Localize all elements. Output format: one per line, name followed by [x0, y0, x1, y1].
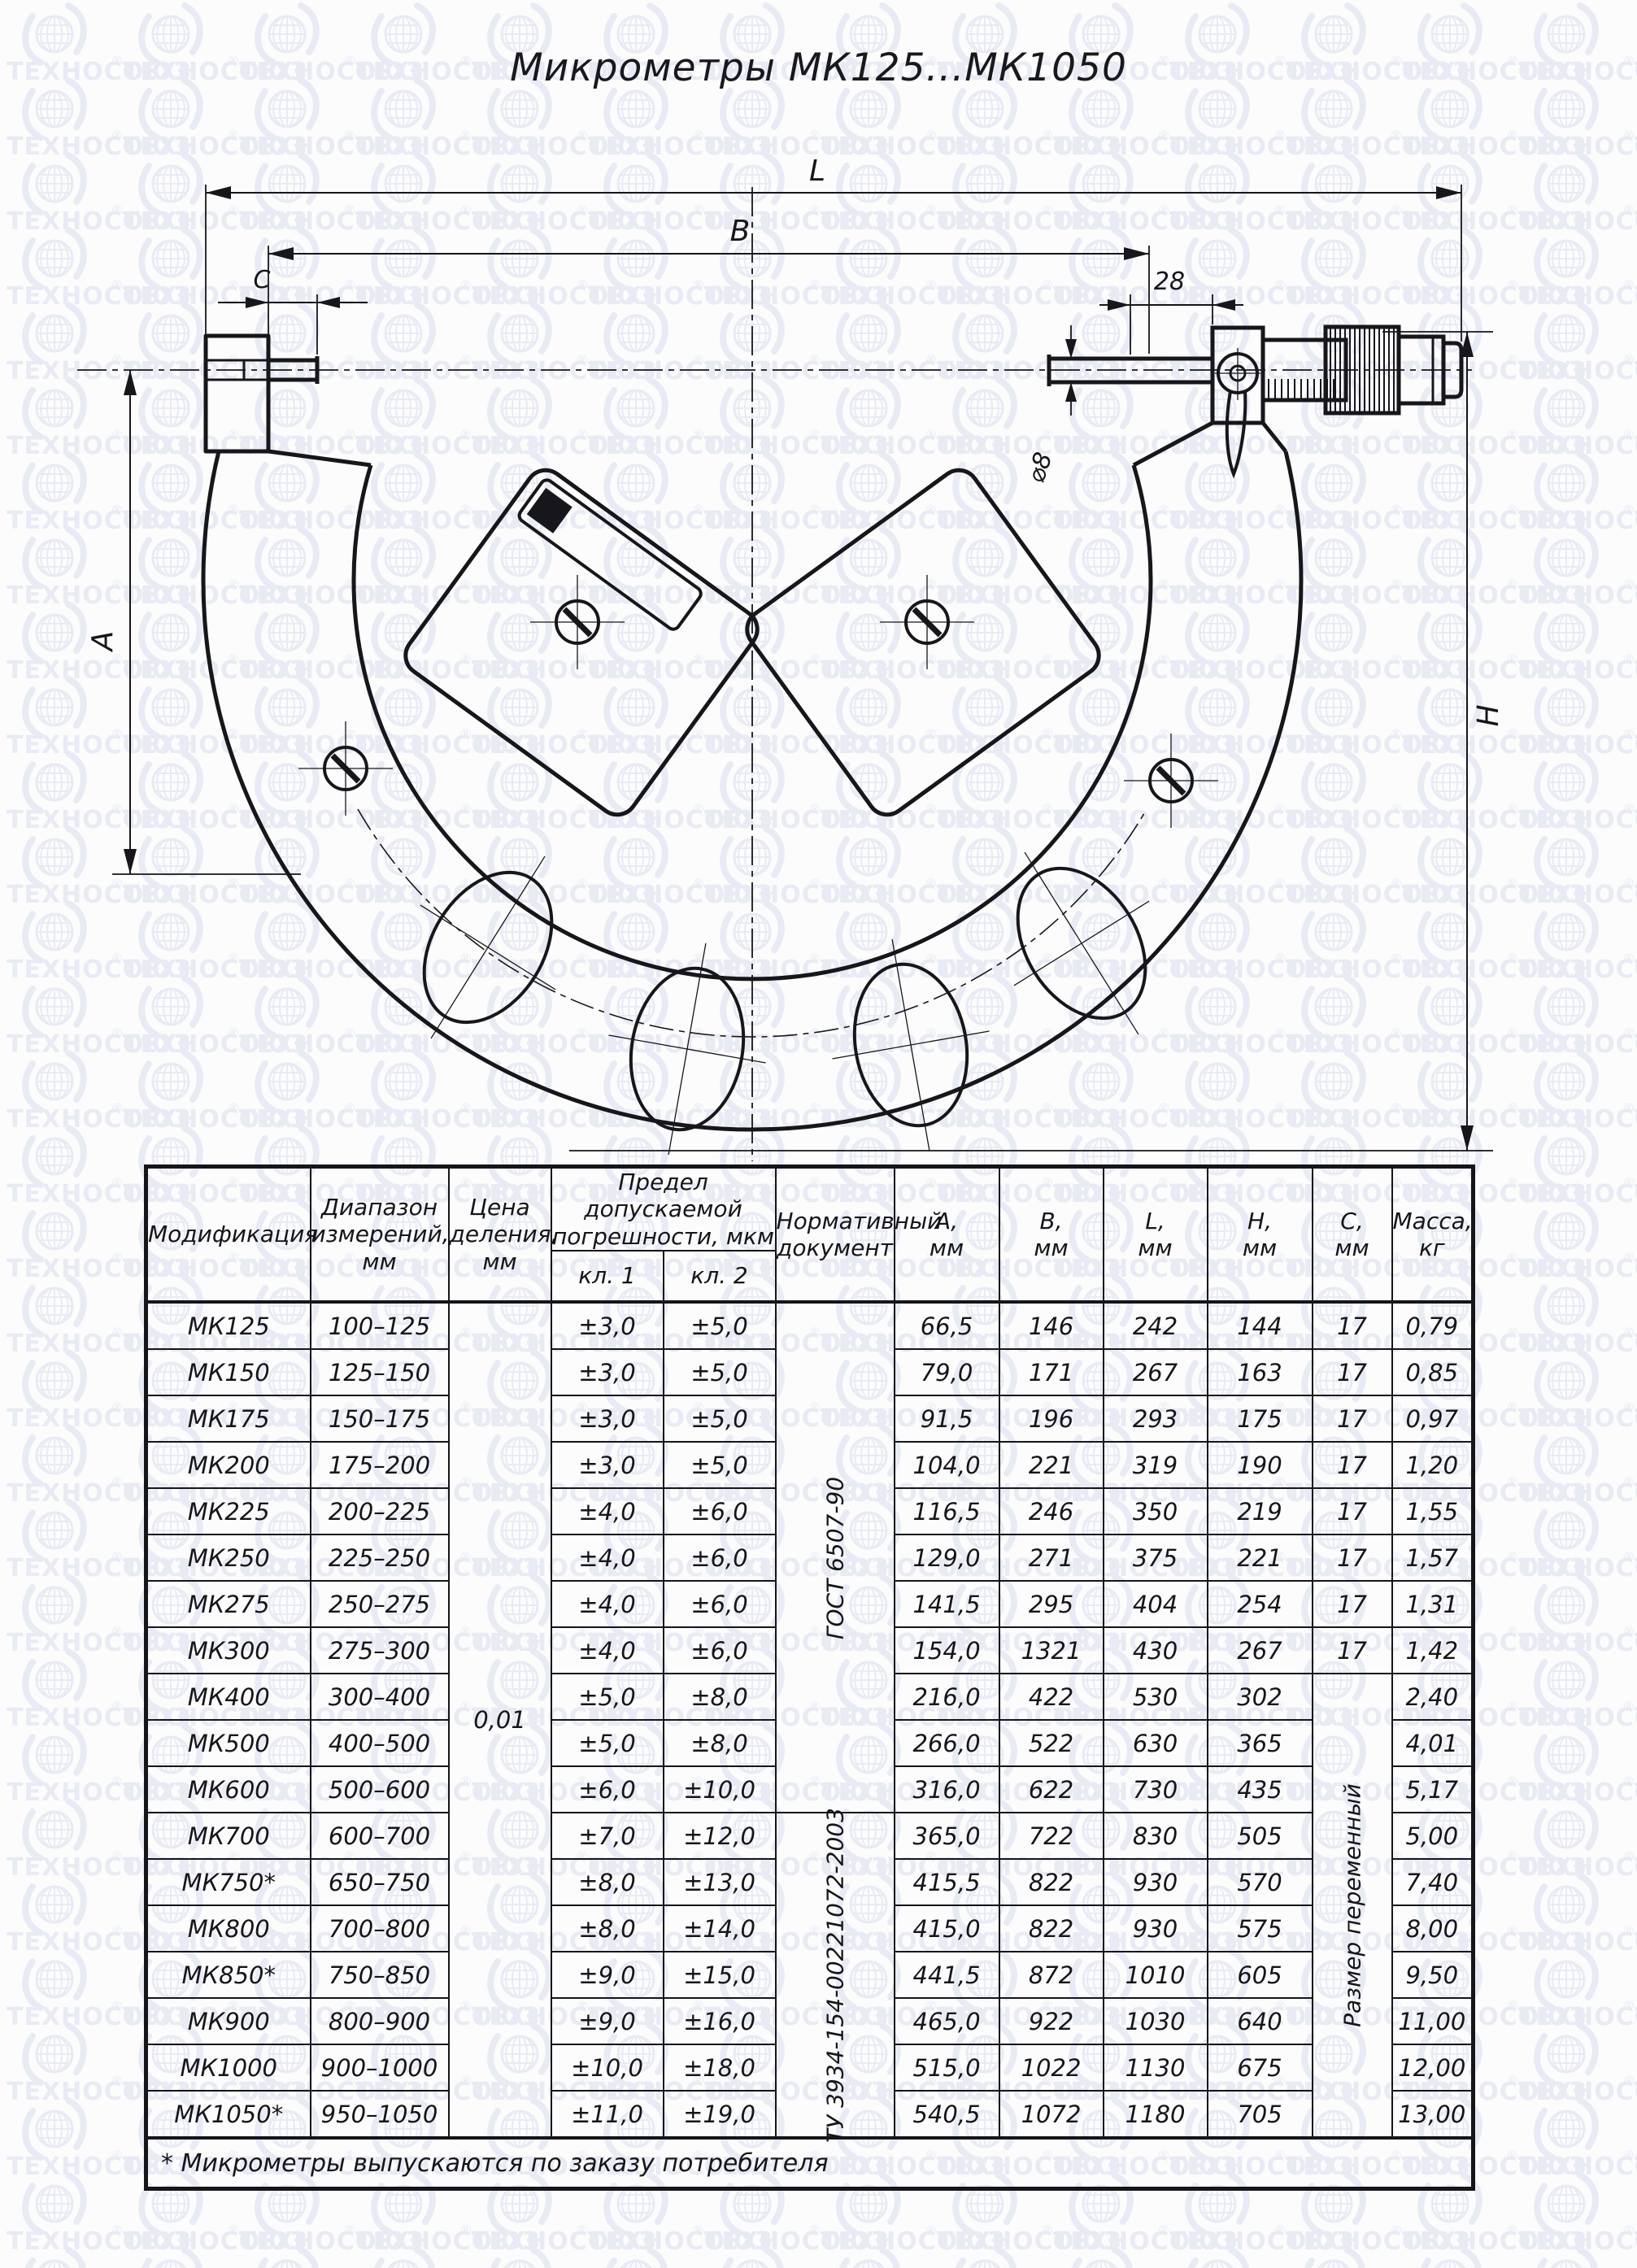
cell-a: 154,0 [895, 1627, 999, 1674]
cell-mass: 0,85 [1392, 1349, 1474, 1395]
cell-h: 144 [1208, 1302, 1313, 1349]
cell-b: 295 [999, 1581, 1104, 1627]
col-header-h: Н, мм [1208, 1167, 1313, 1303]
cell-model: МК175 [146, 1395, 311, 1442]
cell-h: 675 [1208, 2044, 1313, 2091]
cell-l: 430 [1104, 1627, 1208, 1674]
cell-model: МК125 [146, 1302, 311, 1349]
cell-model: МК800 [146, 1905, 311, 1952]
cell-kl1: ±10,0 [551, 2044, 664, 2091]
cell-h: 190 [1208, 1442, 1313, 1488]
cell-a: 415,5 [895, 1859, 999, 1905]
cell-l: 830 [1104, 1813, 1208, 1859]
cell-b: 872 [999, 1952, 1104, 1998]
micrometer-technical-drawing: L B C [0, 138, 1637, 1164]
cell-c: 17 [1313, 1534, 1392, 1581]
cell-kl1: ±8,0 [551, 1905, 664, 1952]
cell-mass: 2,40 [1392, 1674, 1474, 1720]
cell-mass: 11,00 [1392, 1998, 1474, 2044]
cell-a: 415,0 [895, 1905, 999, 1952]
cell-range: 100–125 [311, 1302, 449, 1349]
cell-l: 404 [1104, 1581, 1208, 1627]
cell-model: МК750* [146, 1859, 311, 1905]
cell-l: 350 [1104, 1488, 1208, 1534]
cell-mass: 13,00 [1392, 2091, 1474, 2138]
cell-c: 17 [1313, 1349, 1392, 1395]
cell-kl2: ±13,0 [664, 1859, 776, 1905]
cell-kl1: ±4,0 [551, 1627, 664, 1674]
cell-c: 17 [1313, 1395, 1392, 1442]
cell-a: 216,0 [895, 1674, 999, 1720]
cell-kl1: ±8,0 [551, 1859, 664, 1905]
frame-holes [358, 809, 1206, 1164]
cell-kl1: ±9,0 [551, 1952, 664, 1998]
dim-label-H: H [1472, 704, 1505, 726]
cell-mass: 12,00 [1392, 2044, 1474, 2091]
cell-l: 930 [1104, 1859, 1208, 1905]
cell-mass: 1,42 [1392, 1627, 1474, 1674]
cell-a: 441,5 [895, 1952, 999, 1998]
cell-mass: 7,40 [1392, 1859, 1474, 1905]
lock-lever [1215, 348, 1260, 474]
cell-mass: 1,20 [1392, 1442, 1474, 1488]
cell-range: 200–225 [311, 1488, 449, 1534]
cell-kl1: ±5,0 [551, 1720, 664, 1766]
cell-a: 540,5 [895, 2091, 999, 2138]
dimension-C: C [218, 266, 368, 355]
cell-l: 319 [1104, 1442, 1208, 1488]
cell-range: 950–1050 [311, 2091, 449, 2138]
cell-mass: 9,50 [1392, 1952, 1474, 1998]
cell-kl1: ±3,0 [551, 1349, 664, 1395]
cell-model: МК400 [146, 1674, 311, 1720]
cell-a: 465,0 [895, 1998, 999, 2044]
cell-document-gost: ГОСТ 6507-90 [776, 1302, 895, 1813]
cell-range: 400–500 [311, 1720, 449, 1766]
cell-model: МК200 [146, 1442, 311, 1488]
cell-range: 900–1000 [311, 2044, 449, 2091]
table-header-row-1: Модификация Диапазон измерений, мм Цена … [146, 1167, 1474, 1252]
cell-a: 66,5 [895, 1302, 999, 1349]
cell-a: 316,0 [895, 1766, 999, 1813]
cell-b: 1321 [999, 1627, 1104, 1674]
cell-range: 275–300 [311, 1627, 449, 1674]
col-header-error-group: Предел допускаемой погрешности, мкм [551, 1167, 776, 1252]
cell-model: МК1000 [146, 2044, 311, 2091]
col-header-c: С, мм [1313, 1167, 1392, 1303]
cell-l: 1130 [1104, 2044, 1208, 2091]
cell-b: 271 [999, 1534, 1104, 1581]
cell-kl1: ±4,0 [551, 1488, 664, 1534]
cell-l: 1010 [1104, 1952, 1208, 1998]
cell-mass: 0,97 [1392, 1395, 1474, 1442]
cell-l: 1030 [1104, 1998, 1208, 2044]
cell-h: 605 [1208, 1952, 1313, 1998]
cell-model: МК900 [146, 1998, 311, 2044]
cell-kl2: ±6,0 [664, 1581, 776, 1627]
col-header-l: L, мм [1104, 1167, 1208, 1303]
cell-kl2: ±10,0 [664, 1766, 776, 1813]
cell-b: 822 [999, 1859, 1104, 1905]
cell-b: 422 [999, 1674, 1104, 1720]
col-header-b: В, мм [999, 1167, 1104, 1303]
cell-kl1: ±11,0 [551, 2091, 664, 2138]
cell-range: 175–200 [311, 1442, 449, 1488]
cell-c: 17 [1313, 1581, 1392, 1627]
specification-table: Модификация Диапазон измерений, мм Цена … [144, 1164, 1475, 2191]
cell-a: 129,0 [895, 1534, 999, 1581]
cell-kl1: ±7,0 [551, 1813, 664, 1859]
cell-kl2: ±12,0 [664, 1813, 776, 1859]
cell-b: 246 [999, 1488, 1104, 1534]
table-footnote-row: * Микрометры выпускаются по заказу потре… [146, 2138, 1474, 2189]
cell-kl2: ±19,0 [664, 2091, 776, 2138]
cell-l: 267 [1104, 1349, 1208, 1395]
cell-kl2: ±6,0 [664, 1534, 776, 1581]
cell-b: 922 [999, 1998, 1104, 2044]
cell-range: 800–900 [311, 1998, 449, 2044]
cell-range: 650–750 [311, 1859, 449, 1905]
dim-label-B: B [730, 215, 751, 248]
cell-c: 17 [1313, 1488, 1392, 1534]
dimension-dia8: ⌀8 [1022, 325, 1077, 486]
cell-l: 530 [1104, 1674, 1208, 1720]
gost-label: ГОСТ 6507-90 [821, 1476, 848, 1639]
cell-range: 600–700 [311, 1813, 449, 1859]
cell-kl2: ±8,0 [664, 1720, 776, 1766]
cell-h: 267 [1208, 1627, 1313, 1674]
cell-range: 225–250 [311, 1534, 449, 1581]
cell-a: 116,5 [895, 1488, 999, 1534]
cell-range: 300–400 [311, 1674, 449, 1720]
c-variable-label: Размер переменный [1339, 1783, 1365, 2027]
cell-h: 219 [1208, 1488, 1313, 1534]
cell-mass: 0,79 [1392, 1302, 1474, 1349]
cell-h: 221 [1208, 1534, 1313, 1581]
cell-range: 150–175 [311, 1395, 449, 1442]
dim-label-C: C [254, 266, 271, 294]
cell-kl2: ±5,0 [664, 1302, 776, 1349]
cell-kl1: ±9,0 [551, 1998, 664, 2044]
cell-b: 171 [999, 1349, 1104, 1395]
cell-b: 822 [999, 1905, 1104, 1952]
spindle-assembly [1049, 327, 1461, 474]
cell-kl1: ±4,0 [551, 1581, 664, 1627]
cell-kl1: ±3,0 [551, 1442, 664, 1488]
cell-range: 125–150 [311, 1349, 449, 1395]
cell-mass: 1,31 [1392, 1581, 1474, 1627]
cell-a: 104,0 [895, 1442, 999, 1488]
table-row: МК125 100–125 0,01 ±3,0 ±5,0 ГОСТ 6507-9… [146, 1302, 1474, 1349]
cell-b: 221 [999, 1442, 1104, 1488]
cell-a: 515,0 [895, 2044, 999, 2091]
cell-b: 1022 [999, 2044, 1104, 2091]
cell-mass: 5,17 [1392, 1766, 1474, 1813]
cell-model: МК275 [146, 1581, 311, 1627]
cell-document-tu: ТУ 3934-154-00221072-2003 [776, 1813, 895, 2138]
table-row: МК700 600–700 ±7,0 ±12,0 ТУ 3934-154-002… [146, 1813, 1474, 1859]
cell-kl2: ±6,0 [664, 1627, 776, 1674]
cell-model: МК1050* [146, 2091, 311, 2138]
cell-h: 302 [1208, 1674, 1313, 1720]
cell-h: 435 [1208, 1766, 1313, 1813]
dim-label-A: A [86, 631, 120, 653]
cell-kl2: ±8,0 [664, 1674, 776, 1720]
cell-kl2: ±5,0 [664, 1395, 776, 1442]
col-header-kl1: кл. 1 [551, 1251, 664, 1302]
cell-h: 365 [1208, 1720, 1313, 1766]
col-header-division: Цена деления, мм [449, 1167, 551, 1303]
footnote: * Микрометры выпускаются по заказу потре… [146, 2138, 1474, 2189]
dimension-L: L [206, 155, 1461, 342]
cell-l: 375 [1104, 1534, 1208, 1581]
dimension-28: 28 [1099, 268, 1243, 355]
cell-kl1: ±5,0 [551, 1674, 664, 1720]
cell-mass: 1,55 [1392, 1488, 1474, 1534]
col-header-kl2: кл. 2 [664, 1251, 776, 1302]
cell-b: 622 [999, 1766, 1104, 1813]
cell-h: 175 [1208, 1395, 1313, 1442]
page-title: Микрометры МК125...МК1050 [0, 46, 1637, 90]
cell-mass: 5,00 [1392, 1813, 1474, 1859]
cell-mass: 1,57 [1392, 1534, 1474, 1581]
cell-h: 570 [1208, 1859, 1313, 1905]
cell-l: 630 [1104, 1720, 1208, 1766]
cell-a: 91,5 [895, 1395, 999, 1442]
cell-range: 500–600 [311, 1766, 449, 1813]
dim-label-dia8: ⌀8 [1022, 449, 1059, 486]
cell-model: МК500 [146, 1720, 311, 1766]
cell-b: 1072 [999, 2091, 1104, 2138]
cell-range: 700–800 [311, 1905, 449, 1952]
cell-b: 722 [999, 1813, 1104, 1859]
cell-l: 293 [1104, 1395, 1208, 1442]
cell-c: 17 [1313, 1627, 1392, 1674]
cell-model: МК300 [146, 1627, 311, 1674]
cell-h: 640 [1208, 1998, 1313, 2044]
cell-mass: 8,00 [1392, 1905, 1474, 1952]
cell-kl1: ±6,0 [551, 1766, 664, 1813]
cell-model: МК225 [146, 1488, 311, 1534]
cell-kl2: ±16,0 [664, 1998, 776, 2044]
dim-label-L: L [809, 155, 825, 188]
cell-l: 730 [1104, 1766, 1208, 1813]
cell-kl2: ±5,0 [664, 1442, 776, 1488]
cell-a: 141,5 [895, 1581, 999, 1627]
cell-model: МК700 [146, 1813, 311, 1859]
cell-b: 196 [999, 1395, 1104, 1442]
cell-kl1: ±4,0 [551, 1534, 664, 1581]
cell-h: 254 [1208, 1581, 1313, 1627]
cell-h: 705 [1208, 2091, 1313, 2138]
cell-kl2: ±14,0 [664, 1905, 776, 1952]
cell-kl2: ±18,0 [664, 2044, 776, 2091]
cell-l: 242 [1104, 1302, 1208, 1349]
cell-c: 17 [1313, 1302, 1392, 1349]
cell-range: 750–850 [311, 1952, 449, 1998]
cell-a: 79,0 [895, 1349, 999, 1395]
cell-c-variable-merged: Размер переменный [1313, 1674, 1392, 2138]
cell-h: 505 [1208, 1813, 1313, 1859]
col-header-document: Нормативный документ [776, 1167, 895, 1303]
cell-a: 365,0 [895, 1813, 999, 1859]
specification-table-wrap: Модификация Диапазон измерений, мм Цена … [144, 1164, 1473, 2191]
cell-model: МК850* [146, 1952, 311, 1998]
cell-b: 146 [999, 1302, 1104, 1349]
tu-label: ТУ 3934-154-00221072-2003 [821, 1808, 848, 2143]
cell-kl2: ±15,0 [664, 1952, 776, 1998]
dimension-B: B [268, 215, 1149, 354]
cell-kl2: ±6,0 [664, 1488, 776, 1534]
cell-h: 163 [1208, 1349, 1313, 1395]
cell-l: 930 [1104, 1905, 1208, 1952]
cell-division-merged: 0,01 [449, 1302, 551, 2138]
cell-model: МК250 [146, 1534, 311, 1581]
cell-kl2: ±5,0 [664, 1349, 776, 1395]
cell-model: МК150 [146, 1349, 311, 1395]
cell-kl1: ±3,0 [551, 1302, 664, 1349]
cell-model: МК600 [146, 1766, 311, 1813]
col-header-mass: Масса, кг [1392, 1167, 1474, 1303]
cell-l: 1180 [1104, 2091, 1208, 2138]
cell-h: 575 [1208, 1905, 1313, 1952]
cell-kl1: ±3,0 [551, 1395, 664, 1442]
cell-c: 17 [1313, 1442, 1392, 1488]
col-header-modification: Модификация [146, 1167, 311, 1303]
cell-b: 522 [999, 1720, 1104, 1766]
cell-a: 266,0 [895, 1720, 999, 1766]
cell-mass: 4,01 [1392, 1720, 1474, 1766]
cell-range: 250–275 [311, 1581, 449, 1627]
dim-label-28: 28 [1154, 268, 1185, 296]
col-header-range: Диапазон измерений, мм [311, 1167, 449, 1303]
